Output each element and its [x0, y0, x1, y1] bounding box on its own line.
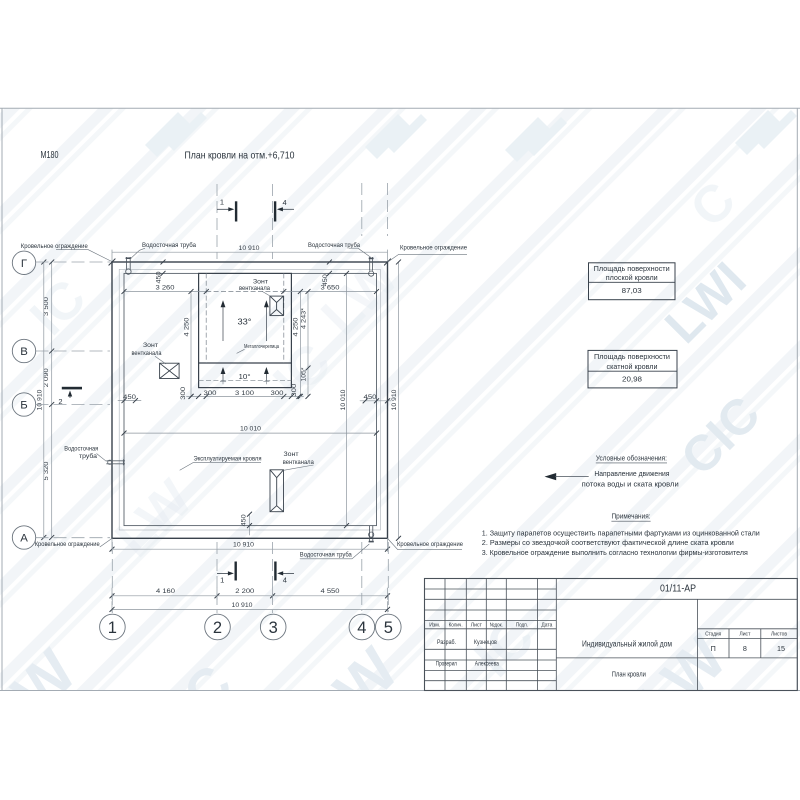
- svg-text:300: 300: [180, 386, 187, 399]
- svg-text:87,03: 87,03: [622, 286, 642, 295]
- svg-text:Дата: Дата: [541, 623, 553, 629]
- svg-text:1: 1: [220, 575, 224, 584]
- svg-text:10 910: 10 910: [233, 542, 254, 549]
- svg-text:Металлочерепица: Металлочерепица: [244, 344, 280, 350]
- svg-text:Условные обозначения:: Условные обозначения:: [596, 454, 667, 462]
- svg-text:Кровельное ограждение: Кровельное ограждение: [400, 245, 467, 252]
- svg-text:4 250: 4 250: [293, 317, 300, 336]
- svg-text:300: 300: [291, 383, 298, 396]
- svg-text:Алексеева: Алексеева: [475, 660, 499, 667]
- svg-text:300: 300: [204, 390, 217, 397]
- svg-text:Б: Б: [20, 400, 27, 412]
- svg-text:Водосточная труба: Водосточная труба: [308, 241, 360, 249]
- svg-text:2 200: 2 200: [235, 588, 254, 595]
- svg-text:Проверил: Проверил: [436, 660, 457, 667]
- svg-text:Эксплуатируемая кровля: Эксплуатируемая кровля: [194, 456, 262, 463]
- svg-text:Колич.: Колич.: [449, 623, 463, 629]
- svg-text:3. Кровельное ограждение выпол: 3. Кровельное ограждение выполнить согла…: [482, 548, 748, 557]
- svg-text:1: 1: [220, 198, 224, 207]
- svg-text:скатной кровли: скатной кровли: [607, 362, 658, 371]
- svg-text:4 243*: 4 243*: [300, 308, 307, 329]
- svg-text:М180: М180: [41, 149, 59, 161]
- svg-text:План кровли на отм.+6,710: План кровли на отм.+6,710: [185, 150, 295, 162]
- svg-text:Изм.: Изм.: [429, 623, 440, 629]
- svg-text:450: 450: [322, 274, 329, 286]
- svg-text:10 010: 10 010: [240, 425, 261, 432]
- svg-text:вентканала: вентканала: [132, 350, 162, 357]
- svg-text:3: 3: [269, 619, 278, 637]
- svg-text:Водосточная труба: Водосточная труба: [142, 241, 196, 249]
- svg-text:вентканала: вентканала: [283, 459, 314, 466]
- svg-text:Листов: Листов: [771, 631, 787, 637]
- svg-text:4: 4: [283, 575, 287, 584]
- svg-text:4 160: 4 160: [156, 588, 175, 595]
- svg-text:Площадь поверхности: Площадь поверхности: [594, 264, 670, 273]
- svg-text:10 910: 10 910: [232, 602, 253, 609]
- svg-text:вентканала: вентканала: [239, 285, 270, 292]
- svg-text:№док.: №док.: [490, 623, 503, 629]
- svg-text:Индивидуальный жилой дом: Индивидуальный жилой дом: [582, 640, 672, 649]
- svg-text:Кровельное ограждение: Кровельное ограждение: [35, 541, 100, 548]
- svg-text:450: 450: [364, 394, 377, 401]
- svg-text:Г: Г: [21, 258, 27, 270]
- svg-text:450: 450: [123, 394, 136, 401]
- svg-text:1: 1: [108, 619, 117, 637]
- svg-text:20,98: 20,98: [622, 375, 642, 384]
- svg-text:Кровельное ограждение: Кровельное ограждение: [21, 243, 88, 250]
- svg-text:2: 2: [58, 397, 62, 406]
- svg-text:Примечания:: Примечания:: [612, 514, 651, 521]
- svg-text:2: 2: [213, 619, 222, 637]
- svg-text:Лист: Лист: [471, 623, 482, 629]
- svg-text:3 260: 3 260: [156, 285, 175, 292]
- svg-text:потока воды и ската кровли: потока воды и ската кровли: [582, 481, 679, 488]
- svg-text:450: 450: [240, 514, 247, 526]
- svg-text:1. Защиту парапетов осуществит: 1. Защиту парапетов осуществить парапетн…: [482, 528, 760, 537]
- svg-text:А: А: [20, 533, 28, 545]
- svg-text:Разраб.: Разраб.: [437, 638, 456, 646]
- svg-text:10 910: 10 910: [37, 389, 44, 410]
- svg-text:4: 4: [283, 198, 287, 207]
- svg-text:Направление движения: Направление движения: [594, 471, 669, 478]
- svg-text:План кровли: План кровли: [612, 669, 646, 678]
- svg-text:Лист: Лист: [739, 631, 750, 637]
- svg-text:15: 15: [777, 644, 785, 653]
- svg-text:105*: 105*: [300, 367, 307, 381]
- svg-text:Кузнецов: Кузнецов: [474, 639, 497, 646]
- svg-text:450: 450: [155, 271, 162, 283]
- svg-text:Кровельное ограждение: Кровельное ограждение: [397, 541, 463, 548]
- svg-text:10 910: 10 910: [391, 389, 398, 410]
- svg-text:В: В: [20, 346, 28, 358]
- svg-text:Водосточная труба: Водосточная труба: [300, 550, 352, 558]
- svg-text:01/11-АР: 01/11-АР: [660, 583, 696, 595]
- svg-text:5: 5: [384, 619, 393, 637]
- svg-text:Зонт: Зонт: [143, 342, 158, 349]
- svg-text:плоской кровли: плоской кровли: [606, 273, 658, 282]
- svg-text:Подп.: Подп.: [516, 623, 528, 629]
- svg-text:П: П: [711, 644, 716, 653]
- svg-text:2. Размеры со звездочкой соотв: 2. Размеры со звездочкой соответствуют ф…: [482, 538, 734, 547]
- svg-text:8: 8: [743, 644, 747, 653]
- svg-text:10 010: 10 010: [340, 389, 347, 410]
- svg-text:Площадь поверхности: Площадь поверхности: [594, 352, 670, 361]
- svg-text:Зонт: Зонт: [284, 451, 299, 458]
- svg-text:Водосточная: Водосточная: [64, 445, 98, 452]
- svg-text:10°: 10°: [239, 372, 251, 381]
- svg-text:3 100: 3 100: [235, 390, 254, 397]
- svg-text:300: 300: [271, 390, 284, 397]
- svg-text:4: 4: [357, 619, 366, 637]
- svg-text:труба: труба: [79, 452, 98, 460]
- svg-text:4 250: 4 250: [183, 317, 190, 336]
- svg-text:10 910: 10 910: [239, 245, 260, 252]
- svg-text:Стадия: Стадия: [705, 631, 721, 637]
- svg-text:4 550: 4 550: [321, 588, 340, 595]
- svg-text:33°: 33°: [238, 318, 252, 327]
